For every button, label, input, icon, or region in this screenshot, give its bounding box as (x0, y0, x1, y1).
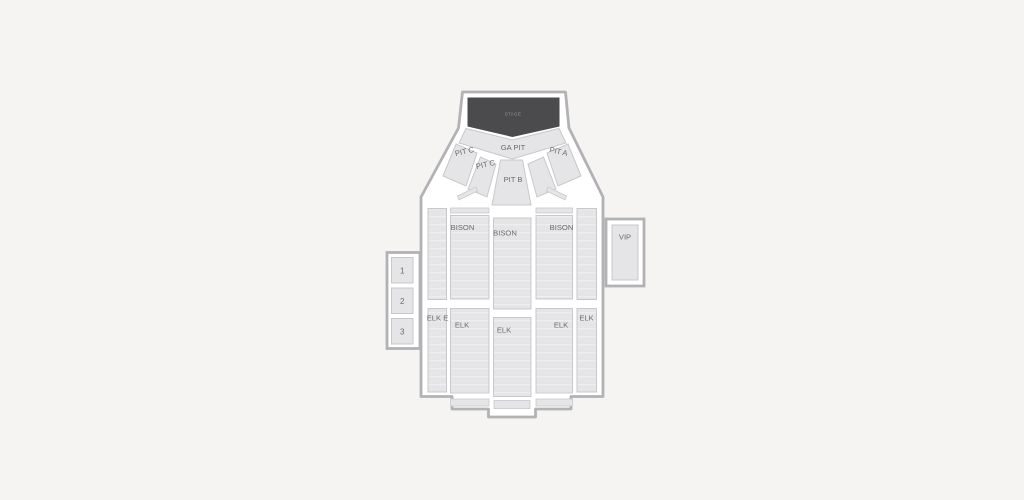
bison-left-front-strip (451, 208, 490, 213)
section-bison-far-left[interactable] (428, 209, 447, 300)
rear-strip-left (451, 399, 490, 406)
vip-label: VIP (619, 233, 631, 242)
seat-map-page: 1 2 3 VIP STAGE GA PIT PIT B PIT C PIT C… (0, 0, 1024, 500)
stage-label: STAGE (505, 112, 522, 117)
elk-center-label: ELK (497, 326, 511, 335)
box-seats-panel: 1 2 3 (387, 253, 420, 349)
rear-strip-center (494, 401, 530, 409)
box-3-label: 3 (400, 328, 405, 337)
bison-left-label: BISON (451, 223, 475, 232)
box-1-label: 1 (400, 267, 405, 276)
elk-far-left-label: ELK E (427, 314, 449, 323)
elk-left-label: ELK (455, 321, 469, 330)
bison-right-front-strip (536, 208, 573, 213)
box-2-label: 2 (400, 297, 405, 306)
bison-right-label: BISON (550, 223, 574, 232)
elk-far-right-label: ELK (579, 314, 593, 323)
bison-center-label: BISON (493, 229, 517, 238)
vip-panel: VIP (606, 219, 644, 286)
pit-b-label: PIT B (504, 175, 523, 184)
elk-right-label: ELK (554, 321, 568, 330)
ga-pit-label: GA PIT (501, 143, 526, 152)
rear-strip-right (536, 399, 573, 406)
section-bison-far-right[interactable] (577, 209, 597, 300)
seat-map-svg: 1 2 3 VIP STAGE GA PIT PIT B PIT C PIT C… (0, 0, 1024, 500)
